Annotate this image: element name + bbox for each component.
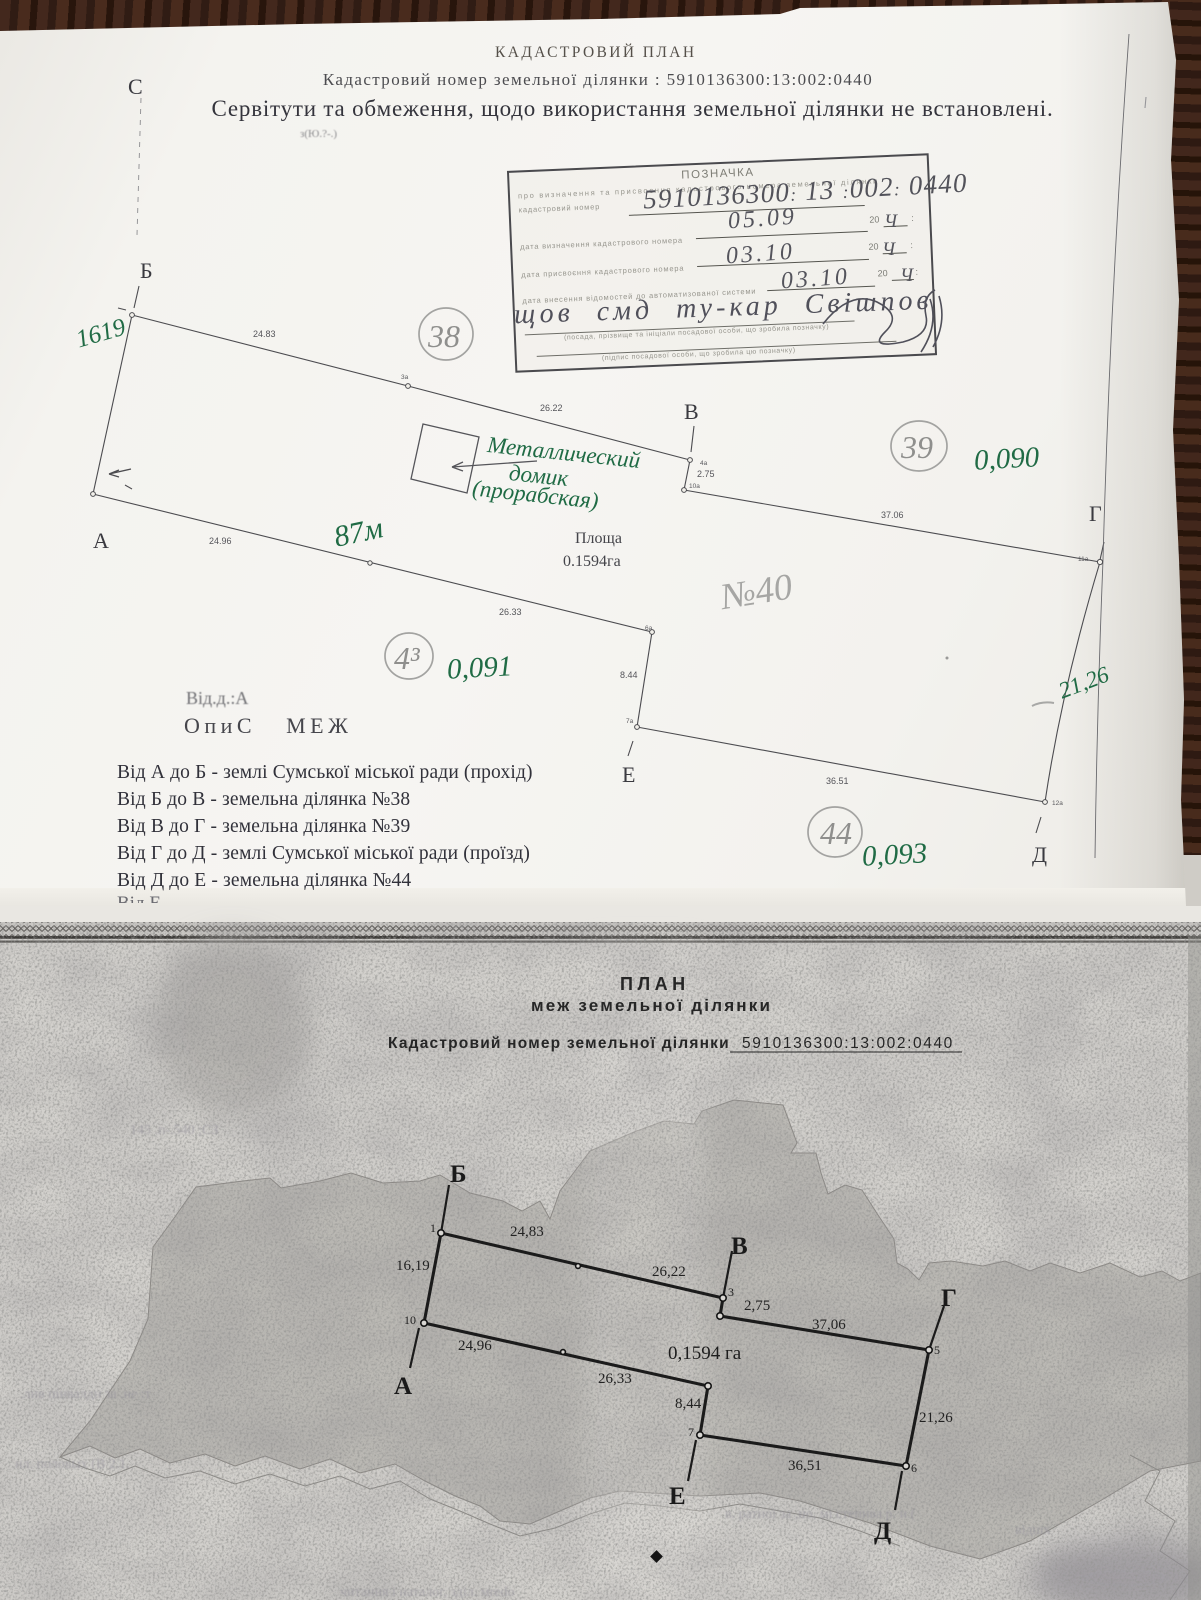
svg-text:24,83: 24,83 — [510, 1224, 544, 1240]
svg-text:А: А — [93, 528, 109, 553]
svg-text:ПЛАН: ПЛАН — [620, 974, 690, 994]
svg-text:7а: 7а — [626, 718, 634, 725]
svg-text:11а: 11а — [1078, 556, 1089, 563]
svg-text:3: 3 — [728, 1285, 734, 1299]
svg-text:12а: 12а — [1052, 800, 1063, 807]
svg-text:Кадастровий номер земельної ді: Кадастровий номер земельної ділянки — [388, 1035, 730, 1052]
svg-text:Площа: Площа — [575, 530, 622, 547]
svg-text:21,26: 21,26 — [919, 1410, 953, 1426]
svg-text:6а: 6а — [645, 625, 653, 632]
svg-text:відшх: відшх — [1015, 1523, 1050, 1538]
svg-text:4а: 4а — [700, 460, 708, 467]
svg-text:С: С — [128, 74, 143, 99]
svg-text:В: В — [684, 399, 699, 424]
svg-text:6: 6 — [911, 1461, 917, 1475]
svg-text:24,96: 24,96 — [458, 1338, 492, 1354]
svg-text:24.96: 24.96 — [209, 536, 232, 546]
svg-text:10а: 10а — [689, 483, 700, 490]
svg-text:Г: Г — [1089, 501, 1102, 526]
svg-text:Е: Е — [669, 1483, 686, 1510]
svg-text:37.06: 37.06 — [881, 510, 904, 520]
svg-text:26.33: 26.33 — [499, 607, 522, 617]
svg-text:Д: Д — [1032, 842, 1047, 867]
svg-text:меж земельної ділянки: меж земельної ділянки — [531, 996, 772, 1015]
svg-text:3а: 3а — [401, 374, 409, 381]
svg-text:39: 39 — [900, 429, 933, 465]
svg-text:16,19: 16,19 — [396, 1258, 430, 1274]
svg-text:24.83: 24.83 — [253, 329, 276, 339]
svg-text:44: 44 — [820, 815, 852, 851]
svg-text:8,44: 8,44 — [675, 1396, 702, 1412]
svg-text:Е: Е — [622, 762, 635, 787]
svg-text:10: 10 — [404, 1313, 416, 1327]
svg-text:Г: Г — [941, 1285, 957, 1312]
svg-text:В: В — [731, 1233, 748, 1260]
svg-text:№40: №40 — [716, 566, 796, 618]
svg-text:1: 1 — [430, 1221, 436, 1235]
svg-text:26,33: 26,33 — [598, 1371, 632, 1387]
svg-text:Б: Б — [450, 1161, 467, 1188]
svg-text:0.1594га: 0.1594га — [563, 553, 621, 570]
svg-text:2,75: 2,75 — [744, 1298, 770, 1314]
svg-text:7: 7 — [688, 1425, 694, 1439]
svg-text:А: А — [394, 1373, 412, 1400]
svg-text:36.51: 36.51 — [826, 776, 849, 786]
svg-text:38: 38 — [427, 318, 460, 354]
svg-text:читання і наталог, зділ. мredо: читання і наталог, зділ. мredо — [340, 1585, 514, 1600]
svg-text:5: 5 — [934, 1343, 940, 1357]
svg-text:37,06: 37,06 — [812, 1317, 846, 1333]
svg-text:Д: Д — [874, 1518, 891, 1545]
svg-text:26.22: 26.22 — [540, 403, 563, 413]
svg-text:145 .п-.540 ;СЗ: 145 .п-.540 ;СЗ — [130, 1123, 218, 1138]
svg-text:нл. половых (В 2.1.: нл. половых (В 2.1. — [15, 1457, 130, 1472]
svg-text:Б: Б — [140, 258, 153, 283]
svg-text:4³: 4³ — [394, 640, 420, 676]
svg-text:.лив пінвалдн за .не :т: .лив пінвалдн за .не :т — [20, 1387, 151, 1402]
svg-text:2.75: 2.75 — [697, 469, 715, 479]
svg-text:8.44: 8.44 — [620, 670, 638, 680]
svg-text:26,22: 26,22 — [652, 1264, 686, 1280]
svg-text:36,51: 36,51 — [788, 1458, 822, 1474]
svg-text:0,1594 га: 0,1594 га — [668, 1343, 742, 1364]
svg-text:5910136300:13:002:0440: 5910136300:13:002:0440 — [742, 1035, 954, 1052]
